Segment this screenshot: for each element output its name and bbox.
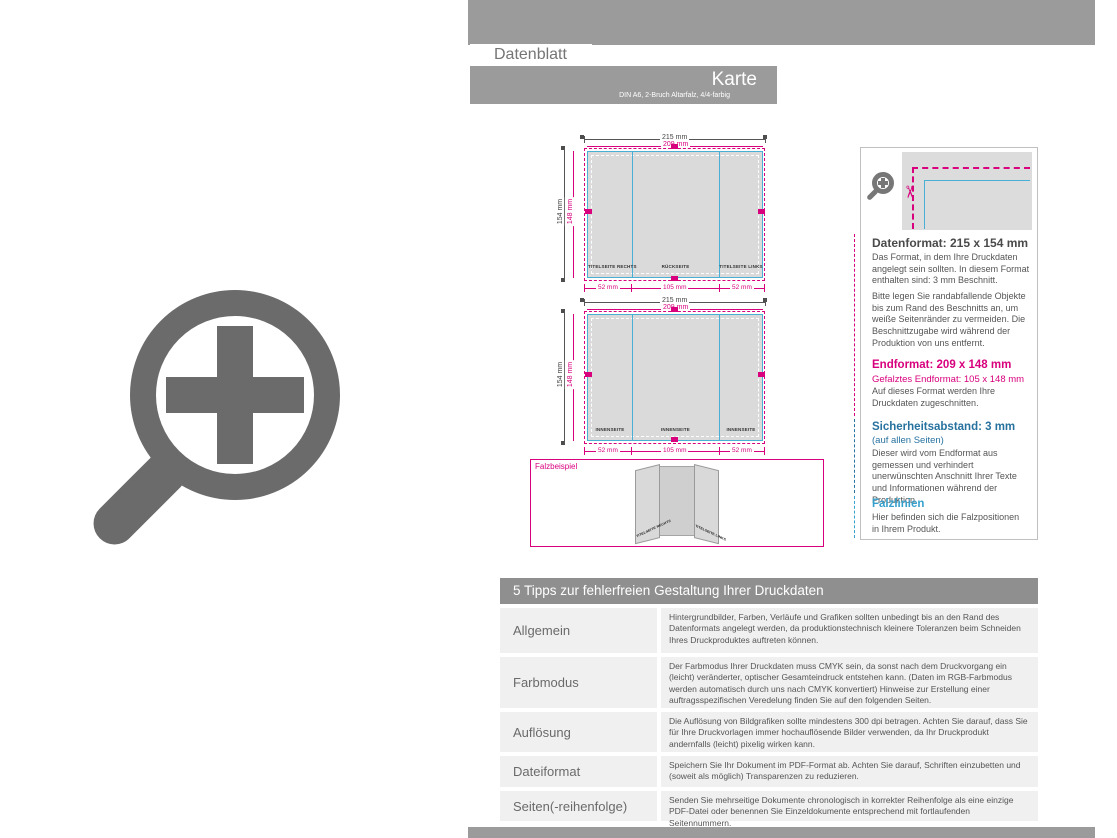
detail-endformat-line-h	[924, 180, 1030, 181]
dim-tick	[584, 447, 585, 455]
detail-illustration: ✂	[866, 152, 1032, 232]
safety-margin-line	[591, 155, 759, 274]
detail-gray-area	[902, 152, 1032, 230]
safety-heading: Sicherheitsabstand: 3 mm	[872, 421, 1015, 433]
zoom-icon-handle	[85, 443, 195, 553]
mini-zoom-plus-v	[881, 178, 885, 188]
dim-tick	[764, 284, 765, 292]
card-face: INNENSEITE INNENSEITE INNENSEITE	[587, 314, 763, 441]
endformat-subheading: Gefalztes Endformat: 105 x 148 mm	[872, 374, 1024, 385]
dim-tick	[719, 447, 720, 455]
tips-row-text: Senden Sie mehrseitige Dokumente chronol…	[661, 791, 1038, 821]
center-mark	[585, 372, 592, 377]
datenformat-text-1: Das Format, in dem Ihre Druckdaten angel…	[872, 252, 1030, 287]
datenformat-text-2: Bitte legen Sie randabfallende Objekte b…	[872, 291, 1032, 349]
segment-label: 105 mm	[661, 447, 688, 454]
connector-safety	[854, 419, 855, 493]
mini-zoom-handle	[866, 188, 879, 201]
tips-row-text: Die Auflösung von Bildgrafiken sollte mi…	[661, 712, 1038, 752]
center-mark	[671, 276, 678, 281]
endformat-heading: Endformat: 209 x 148 mm	[872, 359, 1011, 371]
tips-header: 5 Tipps zur fehlerfreien Gestaltung Ihre…	[500, 578, 1038, 604]
dim-tick	[584, 299, 585, 306]
dim-tick	[764, 447, 765, 455]
zoom-icon-plus-v	[217, 326, 253, 464]
safety-margin-line	[591, 318, 759, 437]
flap-label: TITELSEITE LINKS	[695, 524, 720, 539]
flap-label: TITELSEITE RECHTS	[636, 523, 661, 538]
gatefold-right-flap: TITELSEITE LINKS	[694, 464, 719, 544]
center-mark	[758, 209, 765, 214]
tips-row-text: Der Farbmodus Ihrer Druckdaten muss CMYK…	[661, 657, 1038, 708]
dim-tick	[765, 136, 766, 143]
dim-tick	[584, 136, 585, 143]
dim-label-width-outer: 215 mm	[660, 297, 689, 304]
dim-tick	[719, 284, 720, 292]
datenblatt-tab-label: Datenblatt	[494, 46, 567, 64]
endformat-text: Auf dieses Format werden Ihre Druckdaten…	[872, 386, 1032, 409]
tips-row-label: Allgemein	[500, 608, 657, 653]
dim-tick	[765, 299, 766, 306]
dim-tick	[631, 284, 632, 292]
fold-line	[632, 152, 633, 277]
tips-row-label: Seiten(-reihenfolge)	[500, 791, 657, 821]
connector-fold	[854, 496, 855, 538]
fold-line	[632, 315, 633, 440]
segment-label: 52 mm	[596, 284, 620, 291]
page-subtitle: DIN A6, 2-Bruch Altarfalz, 4/4-farbig	[619, 92, 730, 99]
connector-bleed	[854, 234, 855, 416]
segment-label: 105 mm	[661, 284, 688, 291]
tips-row-text: Hintergrundbilder, Farben, Verläufe und …	[661, 608, 1038, 653]
detail-endformat-line-v	[924, 180, 925, 229]
tips-header-title: 5 Tipps zur fehlerfreien Gestaltung Ihre…	[513, 583, 824, 598]
segment-label: 52 mm	[730, 284, 754, 291]
card-face: TITELSEITE RECHTS RÜCKSEITE TITELSEITE L…	[587, 151, 763, 278]
center-mark	[671, 437, 678, 442]
center-mark	[758, 372, 765, 377]
fold-example-box: Falzbeispiel TITELSEITE RECHTS TITELSEIT…	[530, 459, 824, 547]
tips-row-label: Auflösung	[500, 712, 657, 752]
foldlines-heading: Falzlinien	[872, 498, 924, 510]
panel-label: INNENSEITE	[632, 427, 719, 432]
dim-label-height-inner: 148 mm	[567, 197, 574, 226]
dim-tick	[584, 284, 585, 292]
datenformat-heading: Datenformat: 215 x 154 mm	[872, 236, 1028, 250]
dim-label-height-inner: 148 mm	[567, 360, 574, 389]
zoom-plus-icon	[80, 280, 380, 560]
fold-line	[719, 315, 720, 440]
title-bar: Karte DIN A6, 2-Bruch Altarfalz, 4/4-far…	[470, 66, 777, 104]
center-mark	[585, 209, 592, 214]
tips-row-label: Farbmodus	[500, 657, 657, 708]
dim-label-height-outer: 154 mm	[557, 360, 564, 389]
panel-label: RÜCKSEITE	[632, 264, 719, 269]
page-title: Karte	[712, 69, 757, 91]
tips-row-label: Dateiformat	[500, 756, 657, 787]
center-mark	[671, 307, 678, 312]
page-bottom-band	[468, 827, 1095, 838]
fold-example-label: Falzbeispiel	[535, 462, 577, 471]
panel-label: INNENSEITE	[588, 427, 632, 432]
safety-subheading: (auf allen Seiten)	[872, 435, 944, 446]
datenblatt-tab: Datenblatt	[470, 44, 592, 66]
gatefold-left-flap: TITELSEITE RECHTS	[635, 464, 660, 544]
panel-label: INNENSEITE	[719, 427, 763, 432]
datasheet-page: { "header": { "tab": "Datenblatt", "titl…	[0, 0, 1117, 838]
panel-label: TITELSEITE LINKS	[719, 264, 763, 269]
tips-row-text: Speichern Sie Ihr Dokument im PDF-Format…	[661, 756, 1038, 787]
center-mark	[671, 144, 678, 149]
foldlines-text: Hier befinden sich die Falzpositionen in…	[872, 512, 1022, 535]
fold-line	[719, 152, 720, 277]
segment-label: 52 mm	[596, 447, 620, 454]
dim-label-height-outer: 154 mm	[557, 197, 564, 226]
panel-label: TITELSEITE RECHTS	[588, 264, 632, 269]
dim-label-width-outer: 215 mm	[660, 134, 689, 141]
dim-tick	[631, 447, 632, 455]
segment-label: 52 mm	[730, 447, 754, 454]
page-top-band	[468, 0, 1095, 45]
detail-bleed-line-h	[912, 167, 1030, 169]
scissors-icon: ✂	[899, 185, 919, 199]
